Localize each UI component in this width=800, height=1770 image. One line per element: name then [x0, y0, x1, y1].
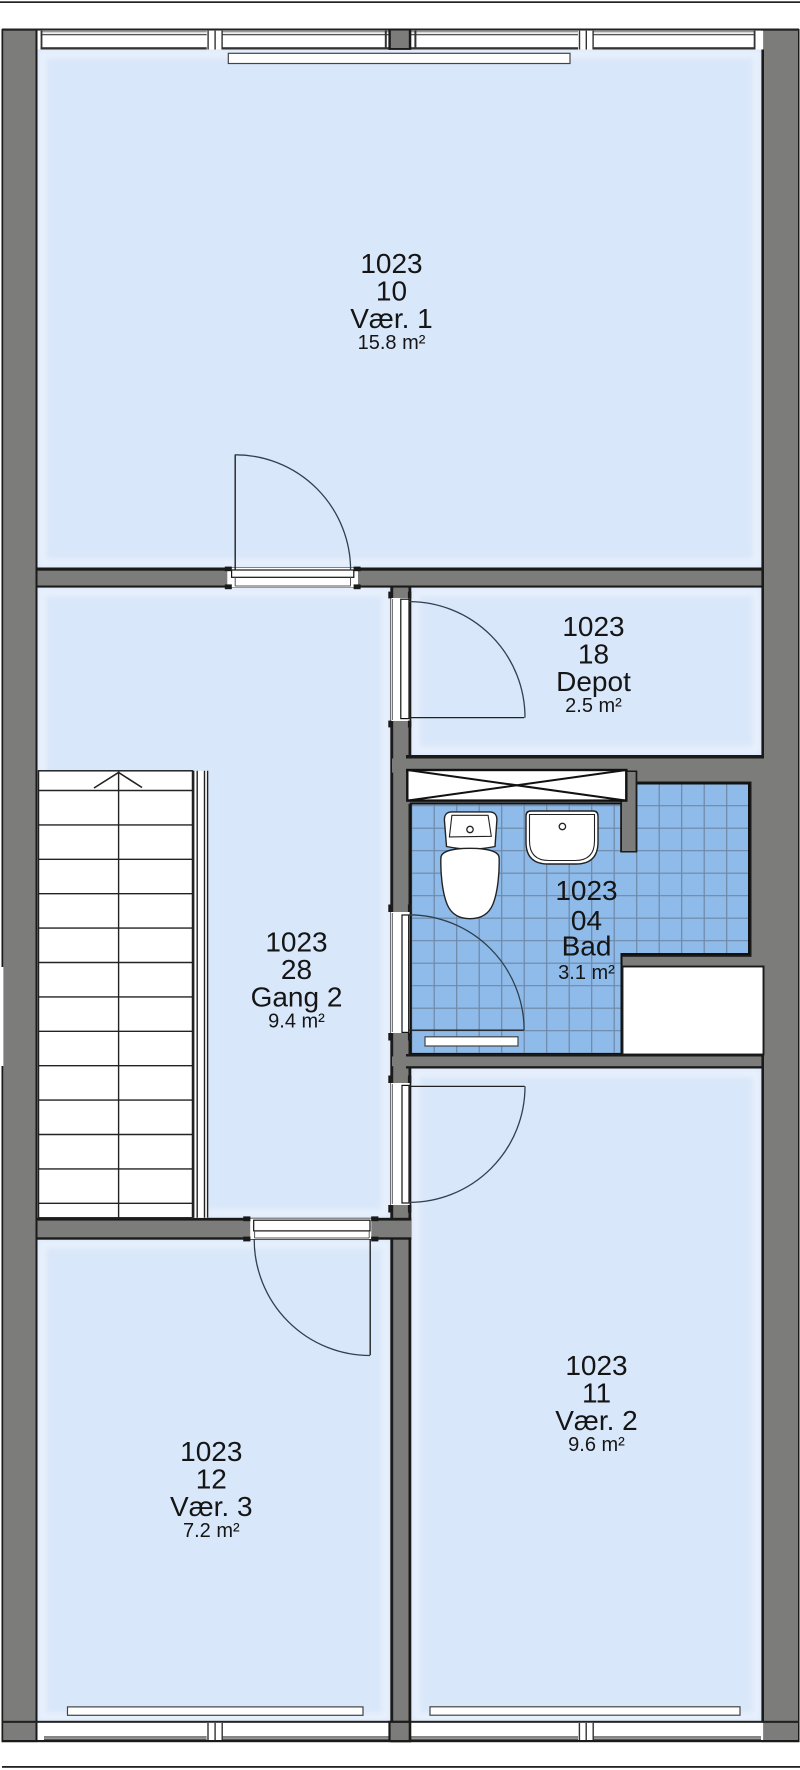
svg-text:11: 11 [582, 1378, 611, 1409]
svg-text:Bad: Bad [562, 931, 612, 962]
svg-text:1023: 1023 [562, 611, 624, 642]
svg-text:1023: 1023 [555, 875, 617, 906]
svg-text:12: 12 [196, 1464, 227, 1495]
svg-text:Vær. 1: Vær. 1 [350, 303, 432, 334]
svg-text:18: 18 [578, 639, 609, 670]
svg-text:3.1 m²: 3.1 m² [558, 962, 615, 984]
svg-text:1023: 1023 [360, 248, 422, 279]
svg-text:9.4 m²: 9.4 m² [268, 1010, 325, 1032]
svg-text:Gang 2: Gang 2 [251, 981, 343, 1012]
svg-text:28: 28 [281, 954, 312, 985]
svg-text:Vær. 3: Vær. 3 [170, 1491, 252, 1522]
svg-text:9.6 m²: 9.6 m² [568, 1434, 625, 1456]
svg-text:2.5 m²: 2.5 m² [565, 695, 622, 717]
svg-text:7.2 m²: 7.2 m² [183, 1520, 240, 1542]
svg-text:10: 10 [376, 275, 407, 306]
svg-text:15.8 m²: 15.8 m² [358, 332, 426, 354]
svg-text:Depot: Depot [556, 666, 631, 697]
svg-text:1023: 1023 [265, 926, 327, 957]
svg-text:1023: 1023 [565, 1350, 627, 1381]
svg-text:Vær. 2: Vær. 2 [555, 1405, 637, 1436]
svg-text:1023: 1023 [180, 1436, 242, 1467]
